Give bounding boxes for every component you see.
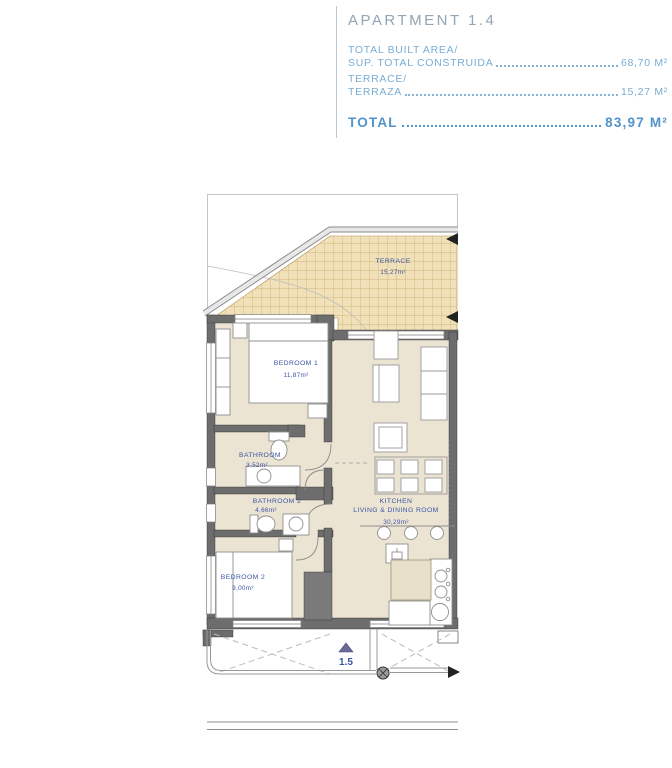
- bathroom2-name: BATHROOM 2: [253, 498, 301, 505]
- level-marker: 1.5: [339, 643, 353, 668]
- kitchen-name-line2: LIVING & DINING ROOM: [353, 507, 438, 514]
- floor-plan: 1.5 TERRACE 15,27m² BEDROOM 1 11,87m² BA…: [0, 0, 672, 768]
- bedroom2-area: 9,00m²: [232, 585, 254, 592]
- kitchen-area: 30,29m²: [383, 519, 409, 526]
- bathroom2-area: 4,66m²: [255, 507, 277, 514]
- kitchen-name-line1: KITCHEN: [380, 498, 413, 505]
- site-boundary-lines: [207, 722, 458, 730]
- bathroom1-name: BATHROOM: [239, 452, 281, 459]
- terrace-area: 15,27m²: [380, 269, 406, 276]
- bathroom1-area: 3,52m²: [246, 462, 268, 469]
- lower-terraces: [207, 629, 450, 679]
- bedroom1-area: 11,87m²: [283, 372, 308, 379]
- bedroom1-name: BEDROOM 1: [274, 360, 318, 367]
- terrace-name: TERRACE: [375, 258, 410, 265]
- bedroom2-name: BEDROOM 2: [221, 574, 265, 581]
- level-marker-label: 1.5: [339, 657, 353, 668]
